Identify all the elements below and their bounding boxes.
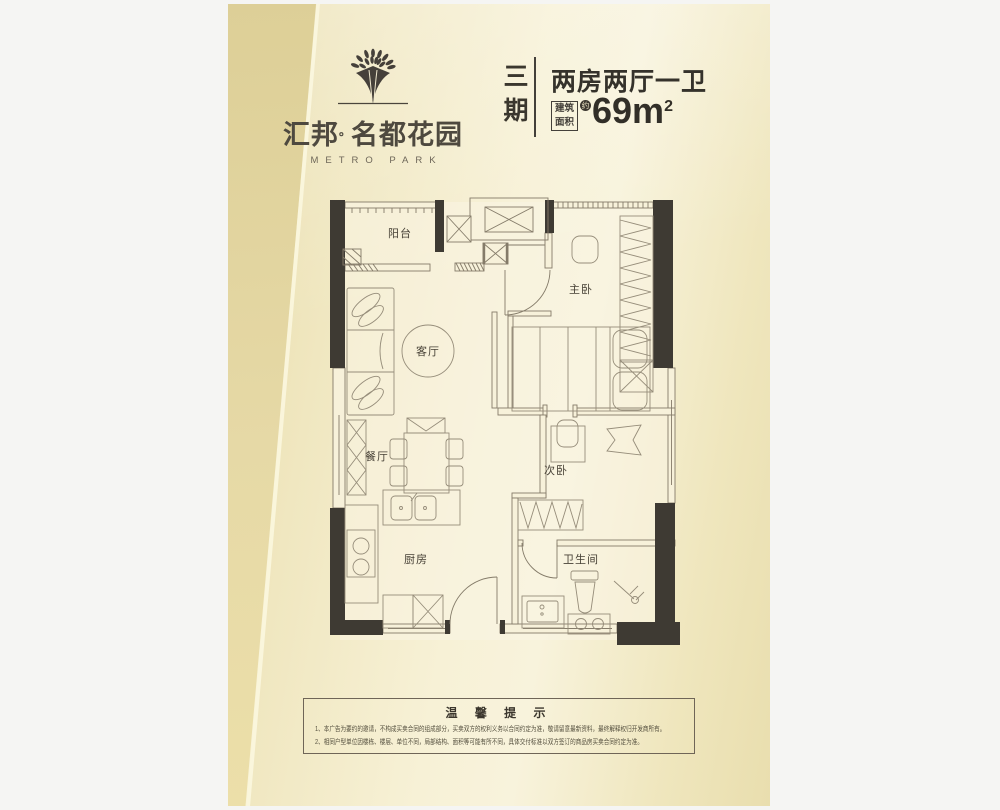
brand-name-en: METRO PARK [268, 155, 478, 166]
area-label-top: 建筑 [552, 102, 577, 116]
area-number: 69m [592, 90, 664, 131]
poster-page: { "logo": { "brand_left": "汇邦", "separat… [0, 0, 1000, 810]
room-label-kitchen: 厨房 [404, 553, 428, 566]
brand-separator-icon: 。 [339, 124, 351, 138]
room-label-balcony: 阳台 [388, 226, 412, 240]
area-label-bottom: 面积 [552, 116, 577, 130]
room-label-dining: 餐厅 [365, 449, 389, 463]
phase-label: 三期 [496, 63, 532, 131]
area-value: 69m2 [592, 90, 673, 132]
logo: 汇邦。名都花园 METRO PARK [268, 46, 478, 166]
header-divider [534, 57, 536, 137]
brand-name: 汇邦。名都花园 [268, 113, 478, 152]
brand-left: 汇邦 [283, 120, 339, 150]
floorplan: 阳台 客厅 餐厅 厨房 主卧 次卧 卫生间 [328, 195, 680, 665]
area-superscript: 2 [664, 98, 673, 115]
tips-box: 温 馨 提 示 1、本广告为要约的邀请，不构成买卖合同的组成部分，买卖双方的权利… [303, 698, 695, 754]
room-label-master: 主卧 [569, 283, 593, 296]
tips-line-1: 1、本广告为要约的邀请，不构成买卖合同的组成部分，买卖双方的权利义务以合同约定为… [315, 724, 618, 734]
room-label-bathroom: 卫生间 [563, 552, 599, 566]
tree-icon [328, 46, 418, 106]
room-label-second: 次卧 [544, 463, 568, 477]
area-label-box: 建筑 面积 [551, 101, 578, 131]
tips-line-2: 2、相同户型单位因楼栋、楼层、单位不同，局部结构、面积等可能有所不同，具体交付标… [315, 737, 618, 747]
room-label-living: 客厅 [416, 344, 440, 358]
approx-badge: 约 [580, 100, 591, 111]
tips-title: 温 馨 提 示 [304, 704, 694, 721]
brand-right: 名都花园 [351, 120, 463, 150]
